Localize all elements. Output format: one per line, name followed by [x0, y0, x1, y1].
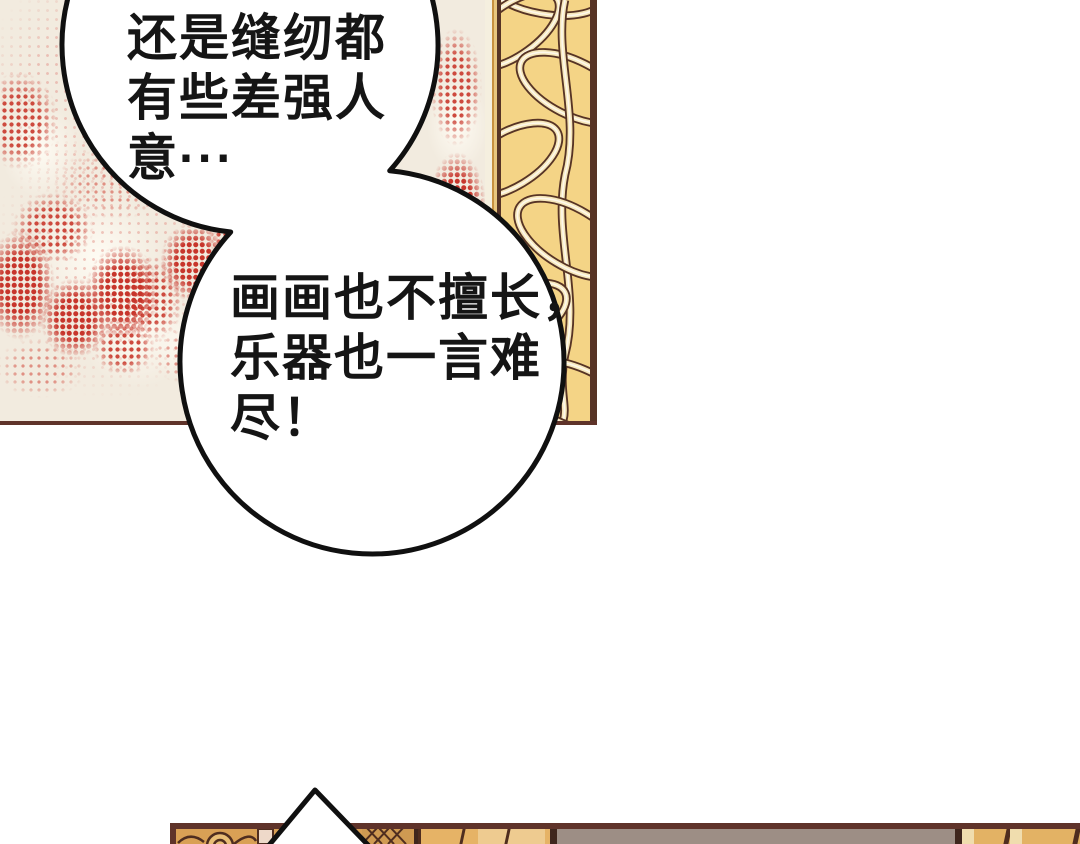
bubble-2-line: 画画也不擅长， [230, 268, 594, 328]
bubble-2-line: 乐器也一言难 [230, 328, 594, 388]
column-divider [1072, 829, 1080, 844]
taupe-wall-segment [557, 829, 955, 844]
bubble-1-line: 意··· [127, 128, 387, 188]
bubble-1-line: 有些差强人 [127, 68, 387, 128]
column-highlight [478, 829, 545, 844]
gold-column-segment [418, 829, 557, 844]
comic-page: 还是缝纫都 有些差强人 意··· 画画也不擅长， 乐器也一言难 尽！ [0, 0, 1080, 844]
dark-divider [550, 829, 557, 844]
speech-bubble-tail [255, 786, 380, 844]
column-divider [459, 829, 465, 844]
column-highlight [1010, 829, 1022, 844]
speech-bubble-2-text: 画画也不擅长， 乐器也一言难 尽！ [230, 268, 594, 448]
gold-column-segment-right [962, 829, 1080, 844]
column-highlight [962, 829, 974, 844]
dark-divider [955, 829, 962, 844]
column-edge-line [418, 829, 421, 844]
speech-bubble-1-text: 还是缝纫都 有些差强人 意··· [127, 8, 387, 188]
bubble-2-line: 尽！ [230, 388, 594, 448]
bubble-1-line: 还是缝纫都 [127, 8, 387, 68]
